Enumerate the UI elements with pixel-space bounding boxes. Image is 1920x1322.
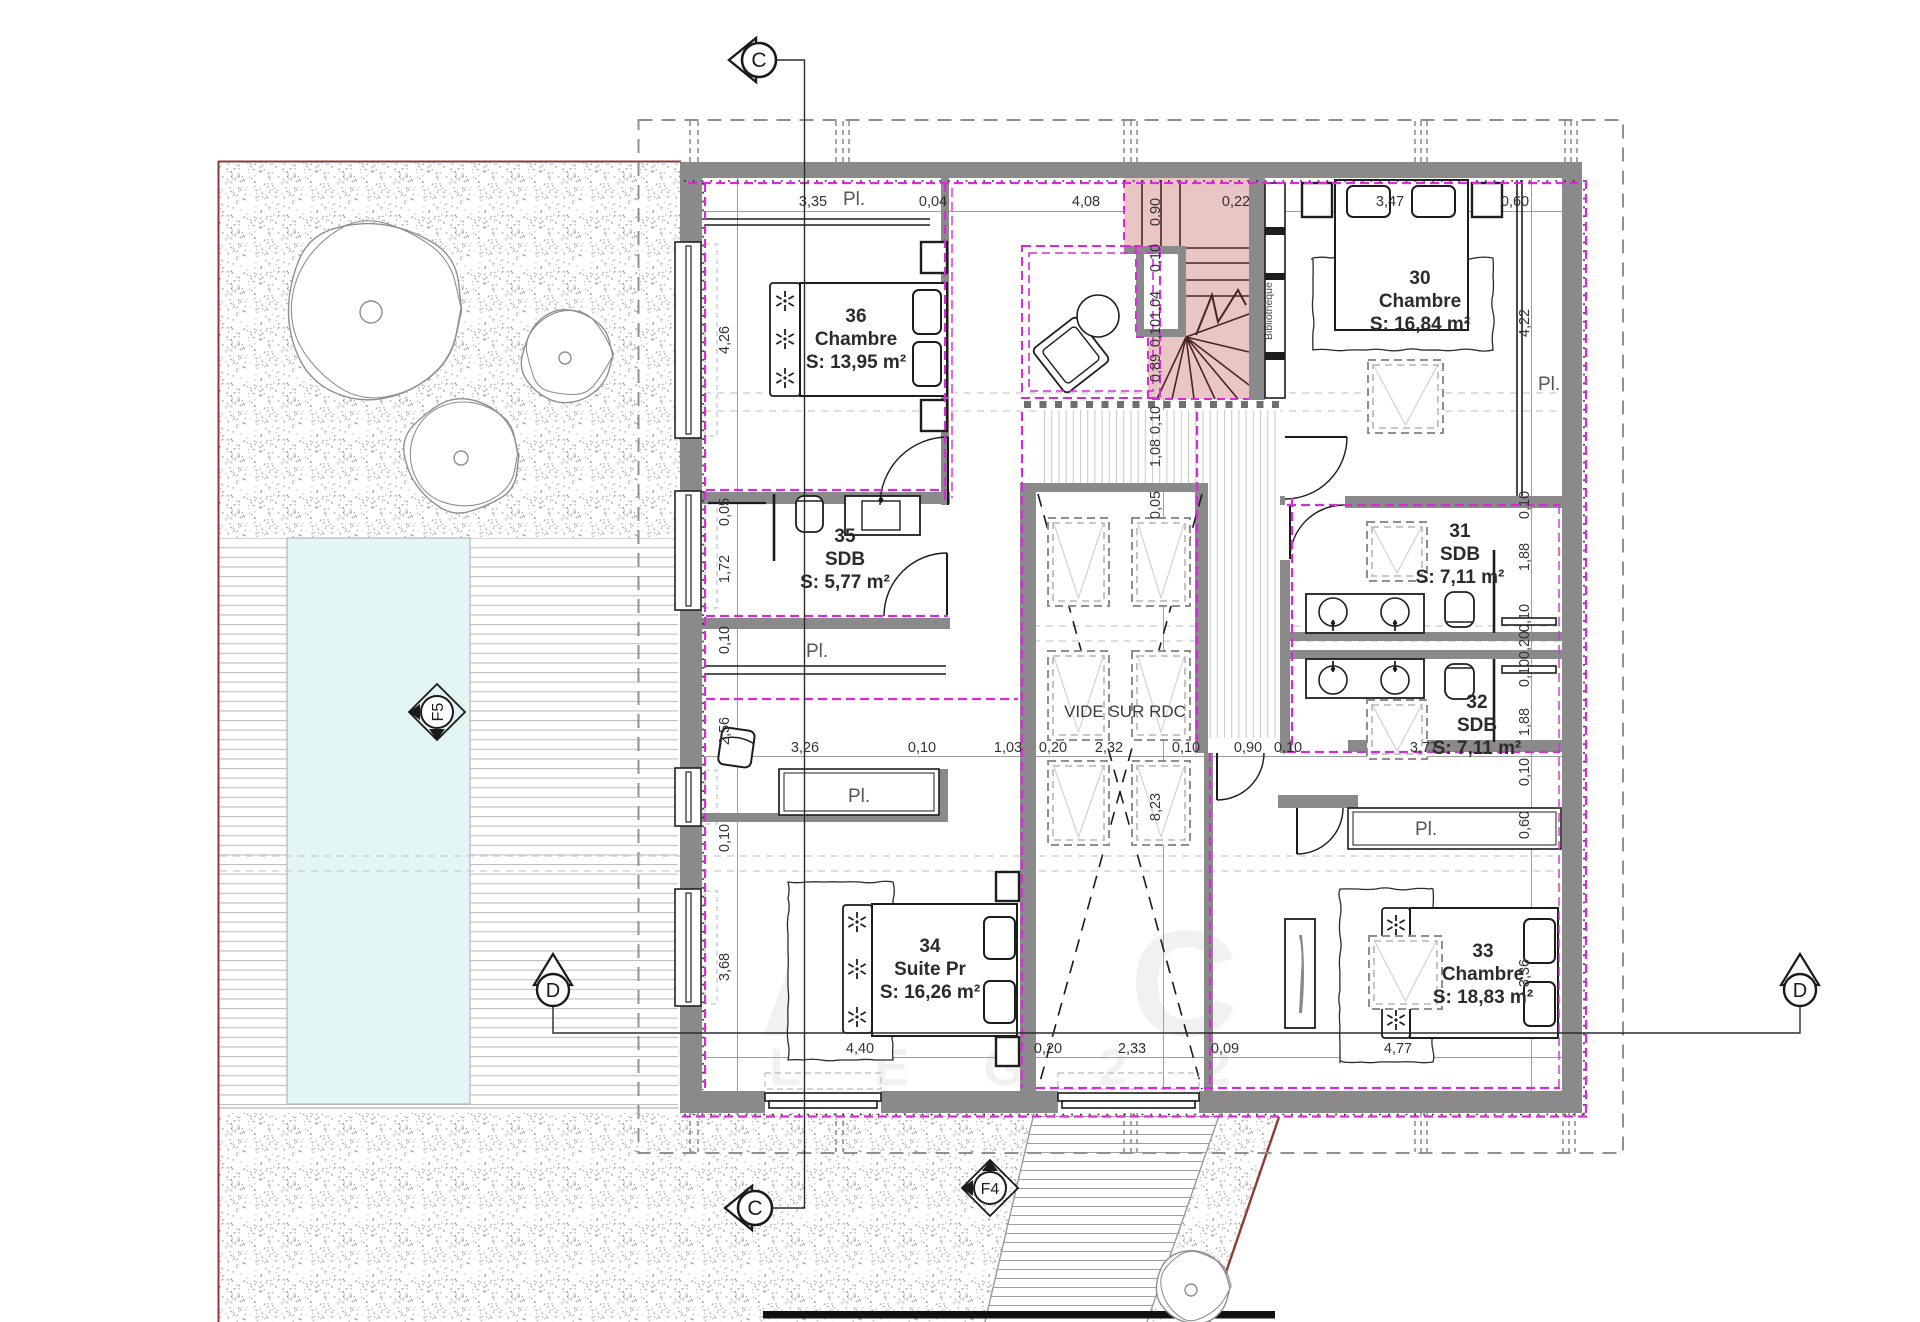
svg-text:F4: F4 [981, 1181, 1000, 1198]
svg-text:Suite Pr: Suite Pr [894, 959, 966, 980]
svg-text:C: C [747, 1197, 762, 1220]
svg-text:0,10: 0,10 [1517, 604, 1533, 632]
svg-text:3,26: 3,26 [791, 740, 819, 756]
svg-text:0,20: 0,20 [1034, 1041, 1062, 1057]
svg-text:F5: F5 [430, 703, 447, 722]
svg-text:VIDE SUR RDC: VIDE SUR RDC [1064, 702, 1186, 721]
svg-text:4,08: 4,08 [1072, 194, 1100, 210]
svg-text:S: 7,11 m²: S: 7,11 m² [1433, 738, 1522, 759]
svg-text:0,60: 0,60 [1517, 811, 1533, 839]
svg-text:0,20: 0,20 [1039, 740, 1067, 756]
svg-text:0,05: 0,05 [717, 498, 733, 526]
svg-text:1,04: 1,04 [1148, 291, 1164, 319]
svg-text:0,90: 0,90 [1148, 198, 1164, 226]
svg-text:S: 16,26 m²: S: 16,26 m² [880, 982, 980, 1003]
svg-text:3,47: 3,47 [1376, 194, 1404, 210]
svg-text:Pl.: Pl. [806, 641, 828, 662]
svg-text:Pl.: Pl. [848, 786, 870, 807]
svg-text:1,88: 1,88 [1517, 543, 1533, 571]
svg-text:0,22: 0,22 [1222, 194, 1250, 210]
svg-text:4,77: 4,77 [1384, 1041, 1412, 1057]
svg-text:S: 13,95 m²: S: 13,95 m² [806, 352, 906, 373]
svg-text:0,10: 0,10 [717, 626, 733, 654]
svg-text:Bibliothèque: Bibliothèque [1263, 282, 1275, 340]
svg-text:Pl.: Pl. [1415, 819, 1437, 840]
svg-text:34: 34 [919, 936, 941, 957]
svg-text:0,10: 0,10 [1274, 740, 1302, 756]
svg-text:Chambre: Chambre [815, 329, 897, 350]
svg-text:3,77: 3,77 [1410, 740, 1438, 756]
svg-text:Pl.: Pl. [843, 189, 865, 210]
svg-text:0,10: 0,10 [1172, 740, 1200, 756]
svg-text:0,10: 0,10 [1148, 244, 1164, 272]
svg-text:4,40: 4,40 [846, 1041, 874, 1057]
svg-text:0,60: 0,60 [1501, 194, 1529, 210]
svg-text:D: D [1793, 980, 1807, 1002]
svg-text:0,90: 0,90 [1234, 740, 1262, 756]
svg-text:SDB: SDB [1457, 715, 1497, 736]
svg-text:2,33: 2,33 [1118, 1041, 1146, 1057]
svg-text:S: 16,84 m²: S: 16,84 m² [1370, 314, 1470, 335]
svg-text:31: 31 [1449, 521, 1471, 542]
svg-text:0,10: 0,10 [1517, 491, 1533, 519]
svg-text:SDB: SDB [825, 549, 865, 570]
svg-text:33: 33 [1472, 941, 1493, 962]
svg-text:0,10: 0,10 [1148, 319, 1164, 347]
svg-text:Chambre: Chambre [1442, 964, 1524, 985]
svg-text:Chambre: Chambre [1379, 291, 1461, 312]
svg-text:4,26: 4,26 [717, 326, 733, 354]
svg-text:0,05: 0,05 [1148, 491, 1164, 519]
svg-text:0,20: 0,20 [1517, 631, 1533, 659]
svg-text:0,04: 0,04 [919, 194, 947, 210]
svg-text:3,35: 3,35 [799, 194, 827, 210]
svg-text:4,22: 4,22 [1517, 309, 1533, 337]
svg-text:32: 32 [1466, 692, 1487, 713]
svg-text:1,03: 1,03 [994, 740, 1022, 756]
svg-text:S: 18,83 m²: S: 18,83 m² [1433, 987, 1533, 1008]
svg-text:1,72: 1,72 [717, 555, 733, 583]
svg-text:Pl.: Pl. [1538, 374, 1560, 395]
svg-text:S: 5,77 m²: S: 5,77 m² [800, 572, 890, 593]
svg-text:2,32: 2,32 [1095, 740, 1123, 756]
svg-text:2,56: 2,56 [717, 717, 733, 745]
svg-text:D: D [546, 980, 560, 1002]
svg-text:8,23: 8,23 [1148, 793, 1164, 821]
svg-text:36: 36 [845, 306, 866, 327]
svg-text:0,10: 0,10 [1148, 406, 1164, 434]
svg-text:3,68: 3,68 [717, 953, 733, 981]
svg-text:0,89: 0,89 [1148, 354, 1164, 382]
svg-text:0,09: 0,09 [1211, 1041, 1239, 1057]
svg-text:C: C [751, 49, 766, 72]
svg-text:0,10: 0,10 [717, 824, 733, 852]
svg-text:30: 30 [1409, 268, 1430, 289]
svg-text:3,36: 3,36 [1517, 959, 1533, 987]
svg-text:S: 7,11 m²: S: 7,11 m² [1416, 567, 1505, 588]
svg-text:SDB: SDB [1440, 544, 1480, 565]
svg-text:1,88: 1,88 [1517, 708, 1533, 736]
svg-text:35: 35 [834, 526, 856, 547]
svg-text:0,10: 0,10 [1517, 758, 1533, 786]
svg-text:0,10: 0,10 [1517, 659, 1533, 687]
svg-text:1,08: 1,08 [1148, 439, 1164, 467]
svg-text:0,10: 0,10 [908, 740, 936, 756]
